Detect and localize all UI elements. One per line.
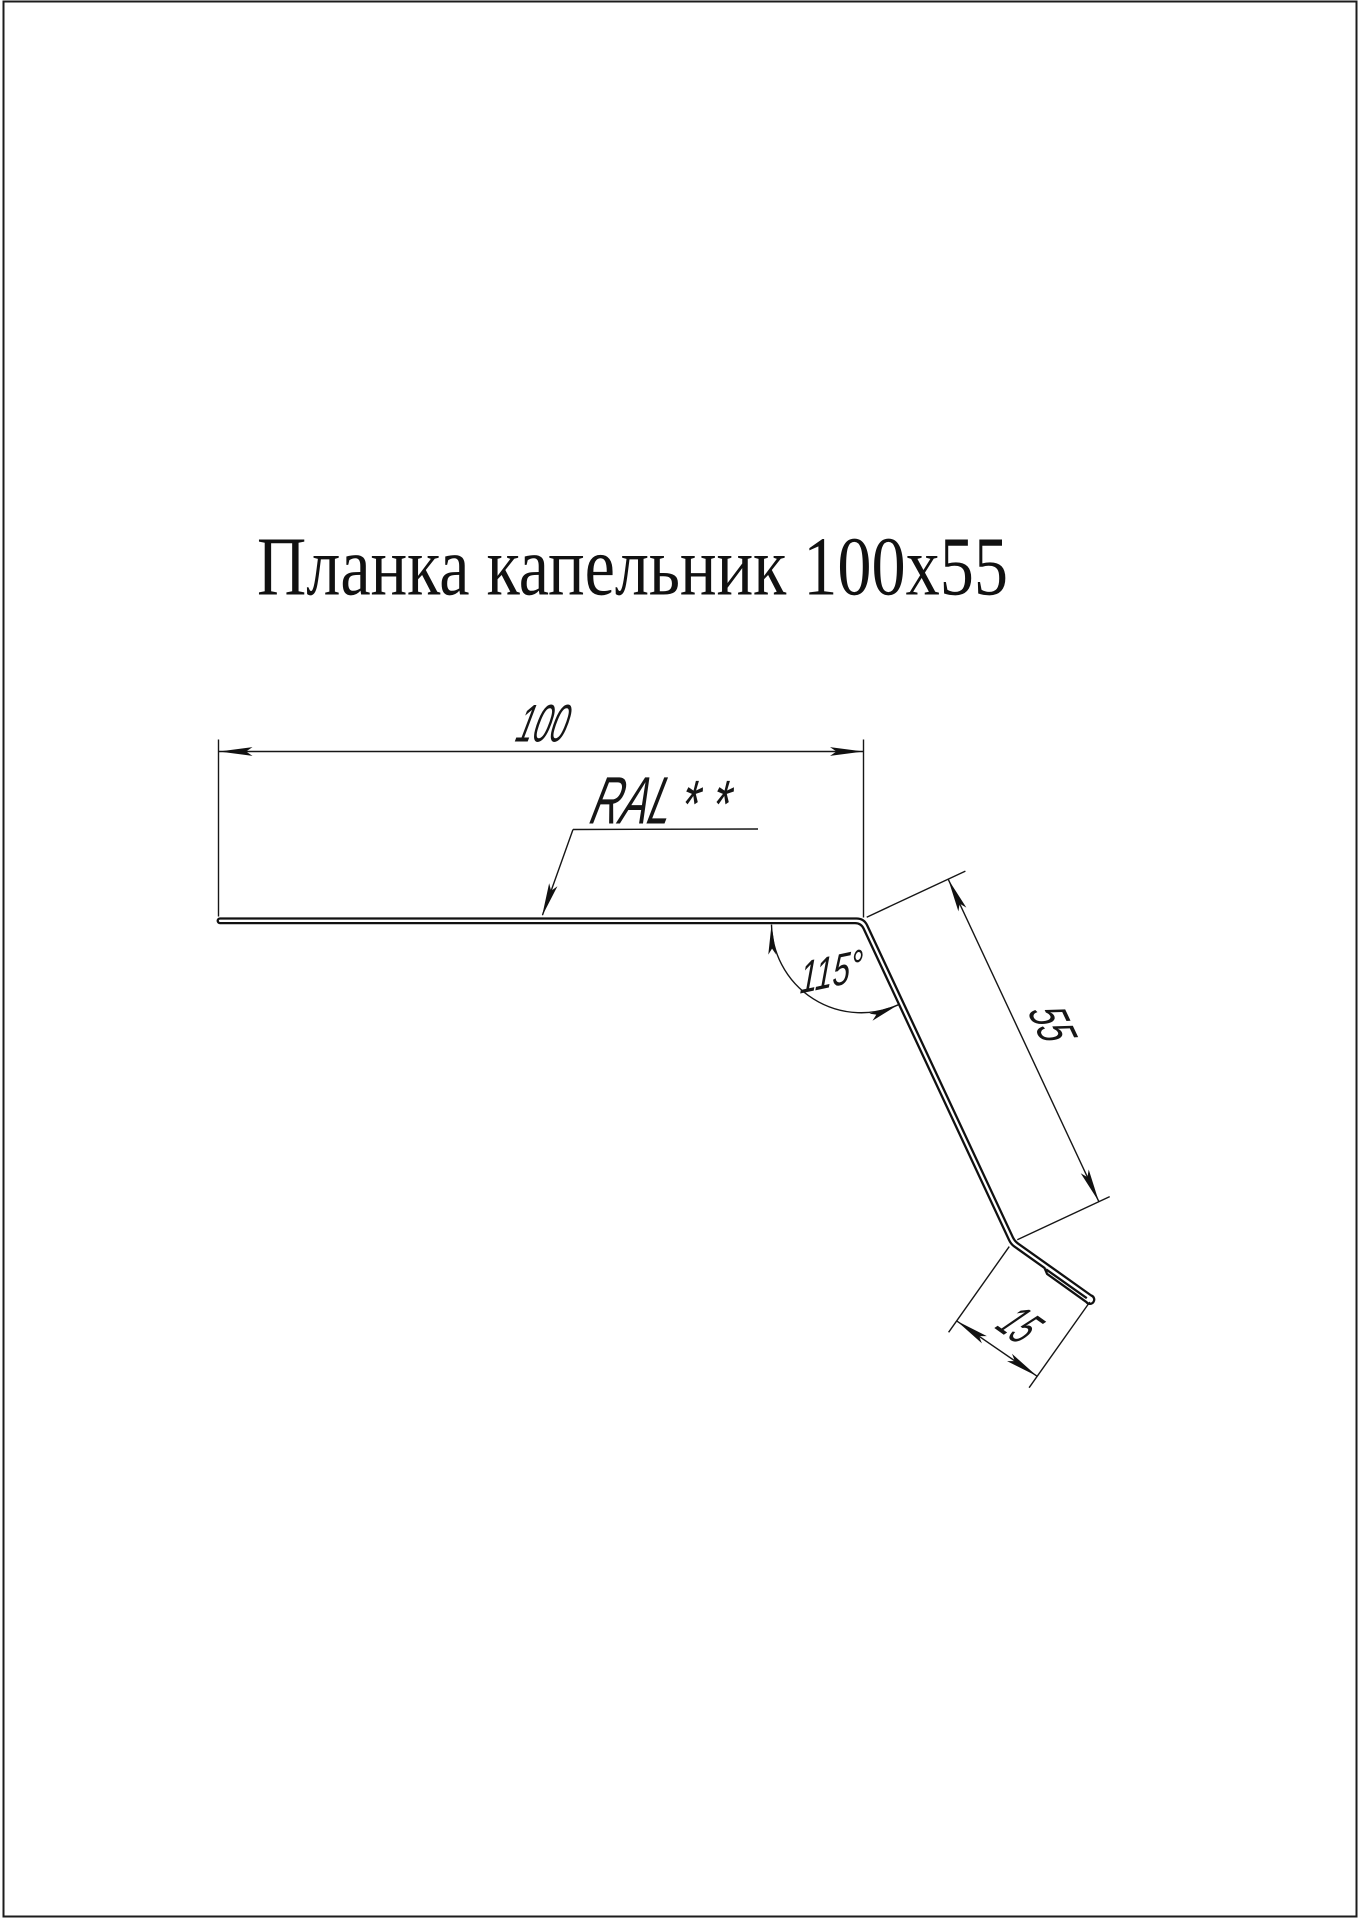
svg-text:Планка капельник 100х55: Планка капельник 100х55 — [257, 521, 1008, 614]
